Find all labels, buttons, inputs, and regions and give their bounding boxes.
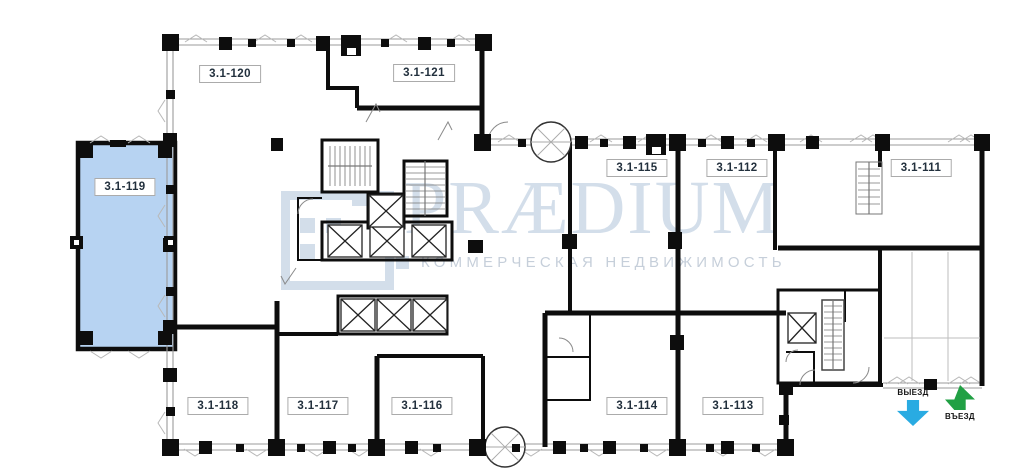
highlighted-unit-3-1-119[interactable] — [78, 143, 175, 349]
unit-label-3-1-113[interactable]: 3.1-113 — [702, 397, 763, 415]
exit-label: ВЫЕЗД — [891, 388, 935, 397]
unit-label-3-1-121[interactable]: 3.1-121 — [393, 64, 455, 82]
entry-arrow-icon — [945, 385, 975, 410]
entry-marker: ВЪЕЗД — [938, 385, 982, 421]
floor-plan-svg — [0, 0, 1024, 473]
unit-label-3-1-116[interactable]: 3.1-116 — [391, 397, 452, 415]
parking-ramp — [884, 252, 980, 381]
unit-label-3-1-117[interactable]: 3.1-117 — [287, 397, 348, 415]
exit-marker: ВЫЕЗД — [891, 388, 935, 426]
entry-label: ВЪЕЗД — [938, 412, 982, 421]
floor-plan-canvas: PRÆDIUM КОММЕРЧЕСКАЯ НЕДВИЖИМОСТЬ — [0, 0, 1024, 473]
structural-columns — [70, 34, 990, 456]
unit-label-3-1-120[interactable]: 3.1-120 — [199, 65, 261, 83]
unit-label-3-1-119[interactable]: 3.1-119 — [94, 178, 155, 196]
unit-label-3-1-111[interactable]: 3.1-111 — [891, 159, 952, 177]
circular-columns — [485, 122, 571, 467]
unit-label-3-1-115[interactable]: 3.1-115 — [606, 159, 667, 177]
exit-arrow-icon — [897, 400, 929, 426]
unit-label-3-1-118[interactable]: 3.1-118 — [187, 397, 248, 415]
unit-label-3-1-112[interactable]: 3.1-112 — [706, 159, 767, 177]
unit-label-3-1-114[interactable]: 3.1-114 — [606, 397, 667, 415]
